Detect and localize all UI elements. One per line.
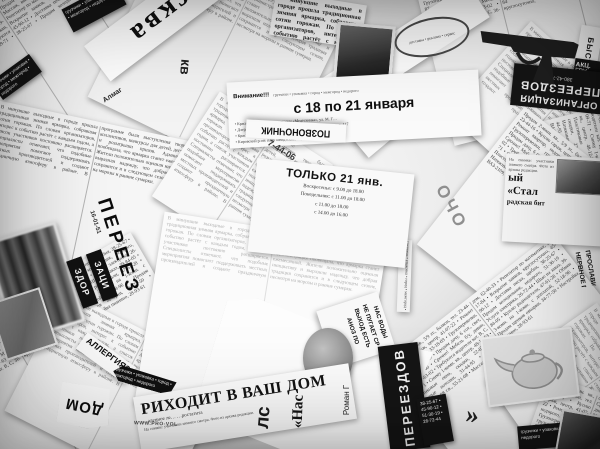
roman-author-fragment: Роман Г <box>343 385 351 415</box>
attention-label: Внимание!!! <box>233 92 269 100</box>
kv-fragment: кв <box>178 59 193 76</box>
moving-vertical-text: ПЕРЕЕЗДОВ <box>392 347 417 447</box>
spine-headline-text: ПОЗВОНОЧНИК <box>261 124 331 138</box>
clipping-photo-thumb <box>555 159 600 195</box>
dom-headline: ДОМ <box>64 395 104 418</box>
newspaper-collage-photo: Продам 2-комн. кв., 5/9 эт., балкон, тел… <box>0 0 600 449</box>
dark-photo-corner <box>554 409 600 449</box>
dom-scrap: ДОМ <box>56 381 112 430</box>
phone-list-microtext: 38-25-67 • 45-90-12 • 51-30-19 • 26-72-4… <box>420 397 448 425</box>
nas-title-fragment: «Нас <box>291 395 307 429</box>
teapot-illustration <box>487 331 574 402</box>
only-21-jan-ad: ТОЛЬКО 21 янв. Воскресенье: с 9.00 до 18… <box>248 158 415 268</box>
teapot-photo <box>480 327 580 408</box>
ls-letters: лс <box>253 406 274 430</box>
stamp-microtext: доставка • реклама • сервис <box>408 30 455 45</box>
attention-microtext: грузчики • упаковка • город • межгород •… <box>273 88 359 97</box>
stalingrad-clipping: На снимке: участники зимнего смотра. Фот… <box>502 153 600 246</box>
